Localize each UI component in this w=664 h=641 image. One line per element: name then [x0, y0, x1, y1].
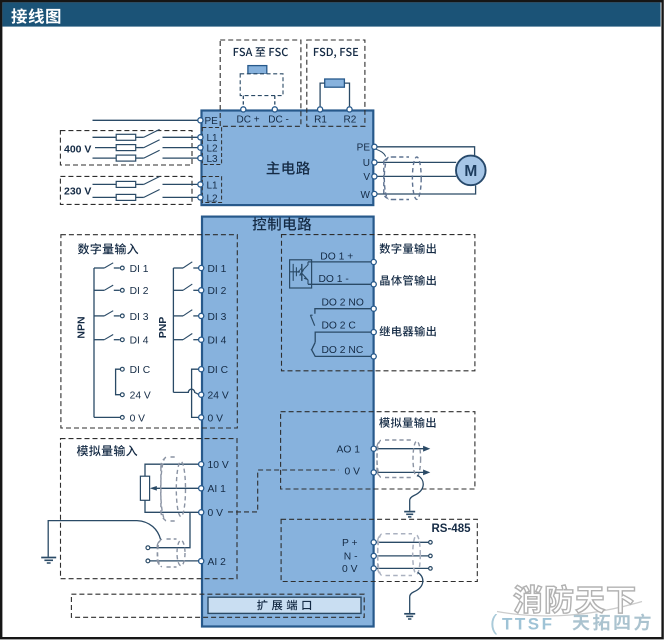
svg-text:24 V: 24 V — [208, 391, 229, 402]
svg-text:N -: N - — [344, 552, 358, 563]
svg-text:PE: PE — [205, 116, 219, 127]
svg-text:DI 4: DI 4 — [208, 336, 227, 347]
svg-text:DO 2 NC: DO 2 NC — [322, 345, 364, 356]
svg-text:(: ( — [490, 610, 498, 635]
svg-text:DI 3: DI 3 — [208, 312, 227, 323]
svg-text:DI 2: DI 2 — [208, 286, 227, 297]
svg-text:DC -: DC - — [268, 115, 289, 126]
svg-text:DO 2 C: DO 2 C — [322, 321, 357, 332]
svg-text:DO 2 NO: DO 2 NO — [322, 297, 364, 308]
svg-text:NPN: NPN — [76, 316, 88, 338]
svg-text:DO 1 +: DO 1 + — [320, 252, 353, 263]
svg-text:AI 2: AI 2 — [208, 557, 227, 568]
svg-text:RS-485: RS-485 — [432, 523, 472, 535]
svg-text:DI 1: DI 1 — [208, 264, 227, 275]
svg-text:DC +: DC + — [236, 115, 259, 126]
svg-text:DI C: DI C — [208, 365, 229, 376]
svg-text:DI 4: DI 4 — [130, 336, 149, 347]
svg-text:V: V — [363, 172, 370, 183]
svg-text:PE: PE — [357, 143, 371, 154]
svg-text:DI 3: DI 3 — [130, 312, 149, 323]
svg-text:0 V: 0 V — [342, 564, 358, 575]
svg-text:PNP: PNP — [157, 317, 169, 339]
svg-text:TTSF: TTSF — [502, 615, 555, 634]
svg-text:M: M — [464, 163, 477, 180]
svg-text:0 V: 0 V — [208, 413, 224, 424]
svg-text:0 V: 0 V — [208, 508, 224, 519]
svg-text:P +: P + — [342, 538, 358, 549]
svg-text:L3: L3 — [207, 154, 219, 165]
svg-text:230 V: 230 V — [64, 185, 91, 197]
svg-text:W: W — [361, 190, 371, 201]
svg-text:DI 2: DI 2 — [130, 286, 149, 297]
svg-text:400 V: 400 V — [64, 144, 91, 156]
svg-text:R2: R2 — [344, 115, 357, 126]
svg-text:AI 1: AI 1 — [208, 484, 227, 495]
svg-text:0 V: 0 V — [345, 466, 361, 477]
svg-text:DI 1: DI 1 — [130, 264, 149, 275]
svg-text:DO 1 -: DO 1 - — [319, 274, 349, 285]
svg-text:10 V: 10 V — [208, 460, 229, 471]
svg-text:0 V: 0 V — [130, 413, 146, 424]
svg-text:AO 1: AO 1 — [337, 444, 361, 455]
svg-text:L2: L2 — [207, 144, 219, 155]
svg-text:R1: R1 — [314, 115, 327, 126]
svg-text:L1: L1 — [207, 180, 219, 191]
svg-text:U: U — [363, 158, 370, 169]
svg-text:24 V: 24 V — [130, 391, 151, 402]
svg-text:DI C: DI C — [130, 365, 151, 376]
